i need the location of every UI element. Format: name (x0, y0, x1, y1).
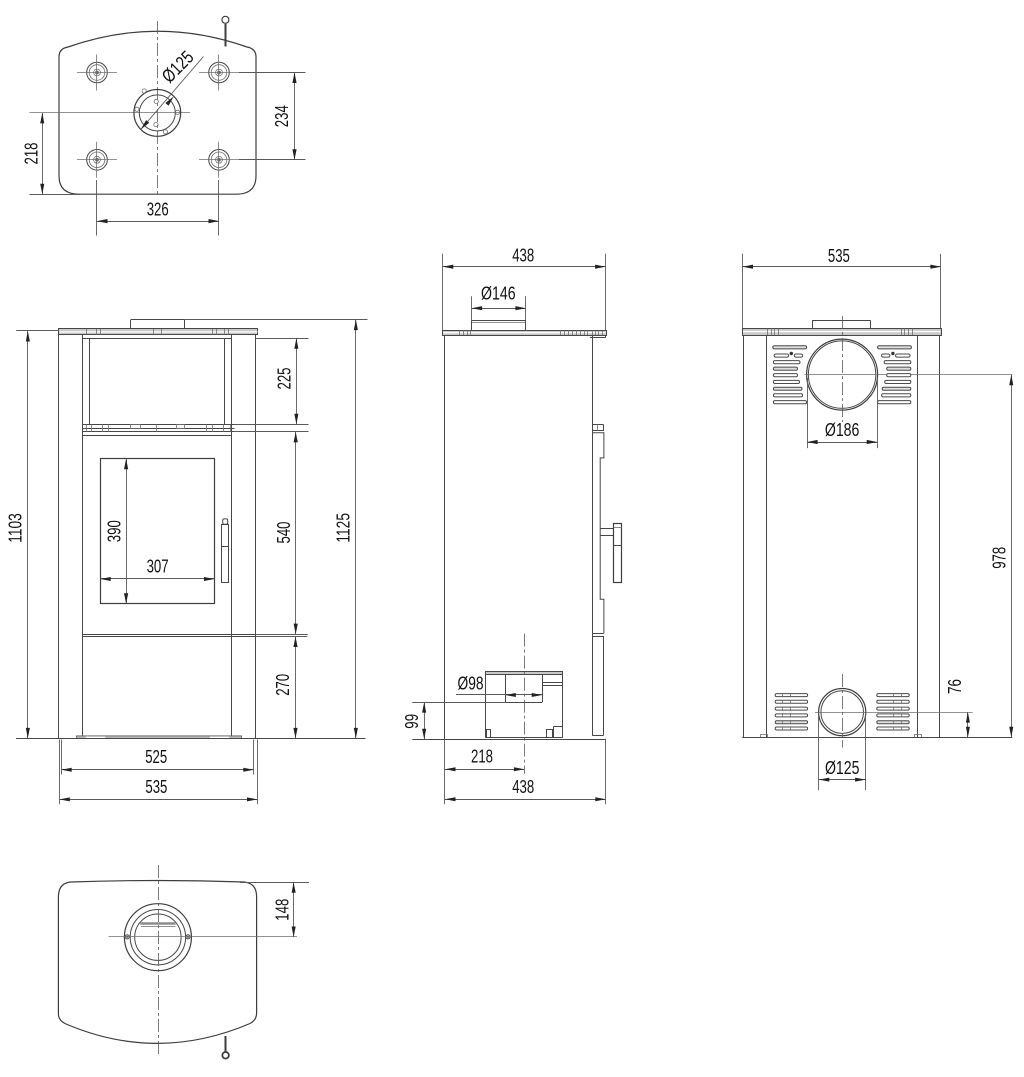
svg-text:148: 148 (272, 899, 293, 921)
svg-text:326: 326 (147, 199, 169, 220)
svg-text:540: 540 (273, 522, 294, 544)
svg-text:525: 525 (145, 746, 167, 767)
svg-text:270: 270 (272, 674, 293, 696)
svg-text:Ø98: Ø98 (458, 672, 484, 693)
svg-text:390: 390 (103, 520, 124, 542)
svg-text:99: 99 (401, 714, 422, 729)
svg-text:218: 218 (20, 143, 41, 165)
svg-text:1103: 1103 (5, 513, 26, 543)
svg-text:438: 438 (512, 776, 534, 797)
svg-text:438: 438 (512, 245, 534, 266)
svg-text:76: 76 (944, 679, 965, 694)
svg-text:Ø146: Ø146 (481, 283, 516, 304)
svg-text:225: 225 (273, 368, 294, 390)
svg-text:978: 978 (988, 547, 1009, 569)
svg-text:Ø125: Ø125 (825, 757, 860, 778)
svg-text:307: 307 (147, 556, 169, 577)
svg-text:218: 218 (471, 746, 493, 767)
svg-text:Ø186: Ø186 (825, 419, 860, 440)
svg-text:535: 535 (828, 245, 850, 266)
svg-text:234: 234 (271, 105, 292, 127)
svg-text:1125: 1125 (333, 513, 354, 543)
svg-text:535: 535 (145, 776, 167, 797)
